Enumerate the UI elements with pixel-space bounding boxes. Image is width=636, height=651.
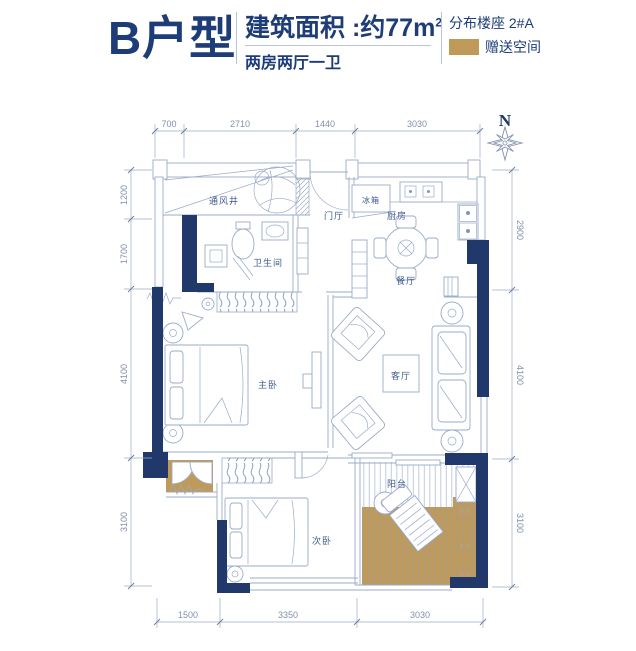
- dims-left: 1200 1700 4100 3100: [119, 167, 152, 589]
- floor-plan: 通风井 卫生间 门厅 冰箱 厨房 餐厅 主卧 客厅 次卧 阳台 700 2710…: [0, 0, 636, 651]
- dim-left-1: 1200: [119, 185, 129, 205]
- dim-bottom-2: 3350: [278, 610, 298, 620]
- floorplan-page: B户型 建筑面积 :约77m2 两房两厅一卫 分布楼座 2#A 赠送空间: [0, 0, 636, 651]
- room-label-dining: 餐厅: [396, 275, 416, 286]
- room-label-foyer: 门厅: [324, 210, 344, 221]
- room-label-balcony: 阳台: [387, 478, 407, 489]
- dim-right-3: 3100: [515, 513, 525, 533]
- dim-left-4: 3100: [119, 512, 129, 532]
- dims-right: 2900 4100 3100: [492, 167, 525, 590]
- plan-linework: [147, 160, 487, 590]
- dim-top-3: 1440: [315, 119, 335, 129]
- room-label-kitchen: 厨房: [387, 210, 407, 221]
- room-label-master: 主卧: [258, 379, 278, 390]
- room-label-vent: 通风井: [209, 195, 239, 206]
- dim-right-2: 4100: [515, 365, 525, 385]
- dims-top: 700 2710 1440 3030: [152, 119, 483, 158]
- dim-top-2: 2710: [230, 119, 250, 129]
- room-label-fridge: 冰箱: [362, 195, 380, 205]
- dims-bottom: 1500 3350 3030: [154, 598, 486, 628]
- dim-top-4: 3030: [407, 119, 427, 129]
- room-label-bath: 卫生间: [253, 257, 283, 268]
- room-label-second: 次卧: [312, 535, 332, 546]
- room-label-living: 客厅: [391, 370, 411, 381]
- dim-left-3: 4100: [119, 364, 129, 384]
- dim-bottom-3: 3030: [410, 610, 430, 620]
- compass-icon: N: [488, 111, 522, 160]
- dim-right-1: 2900: [515, 220, 525, 240]
- dim-bottom-1: 1500: [178, 610, 198, 620]
- dim-left-2: 1700: [119, 244, 129, 264]
- dim-top-1: 700: [161, 119, 176, 129]
